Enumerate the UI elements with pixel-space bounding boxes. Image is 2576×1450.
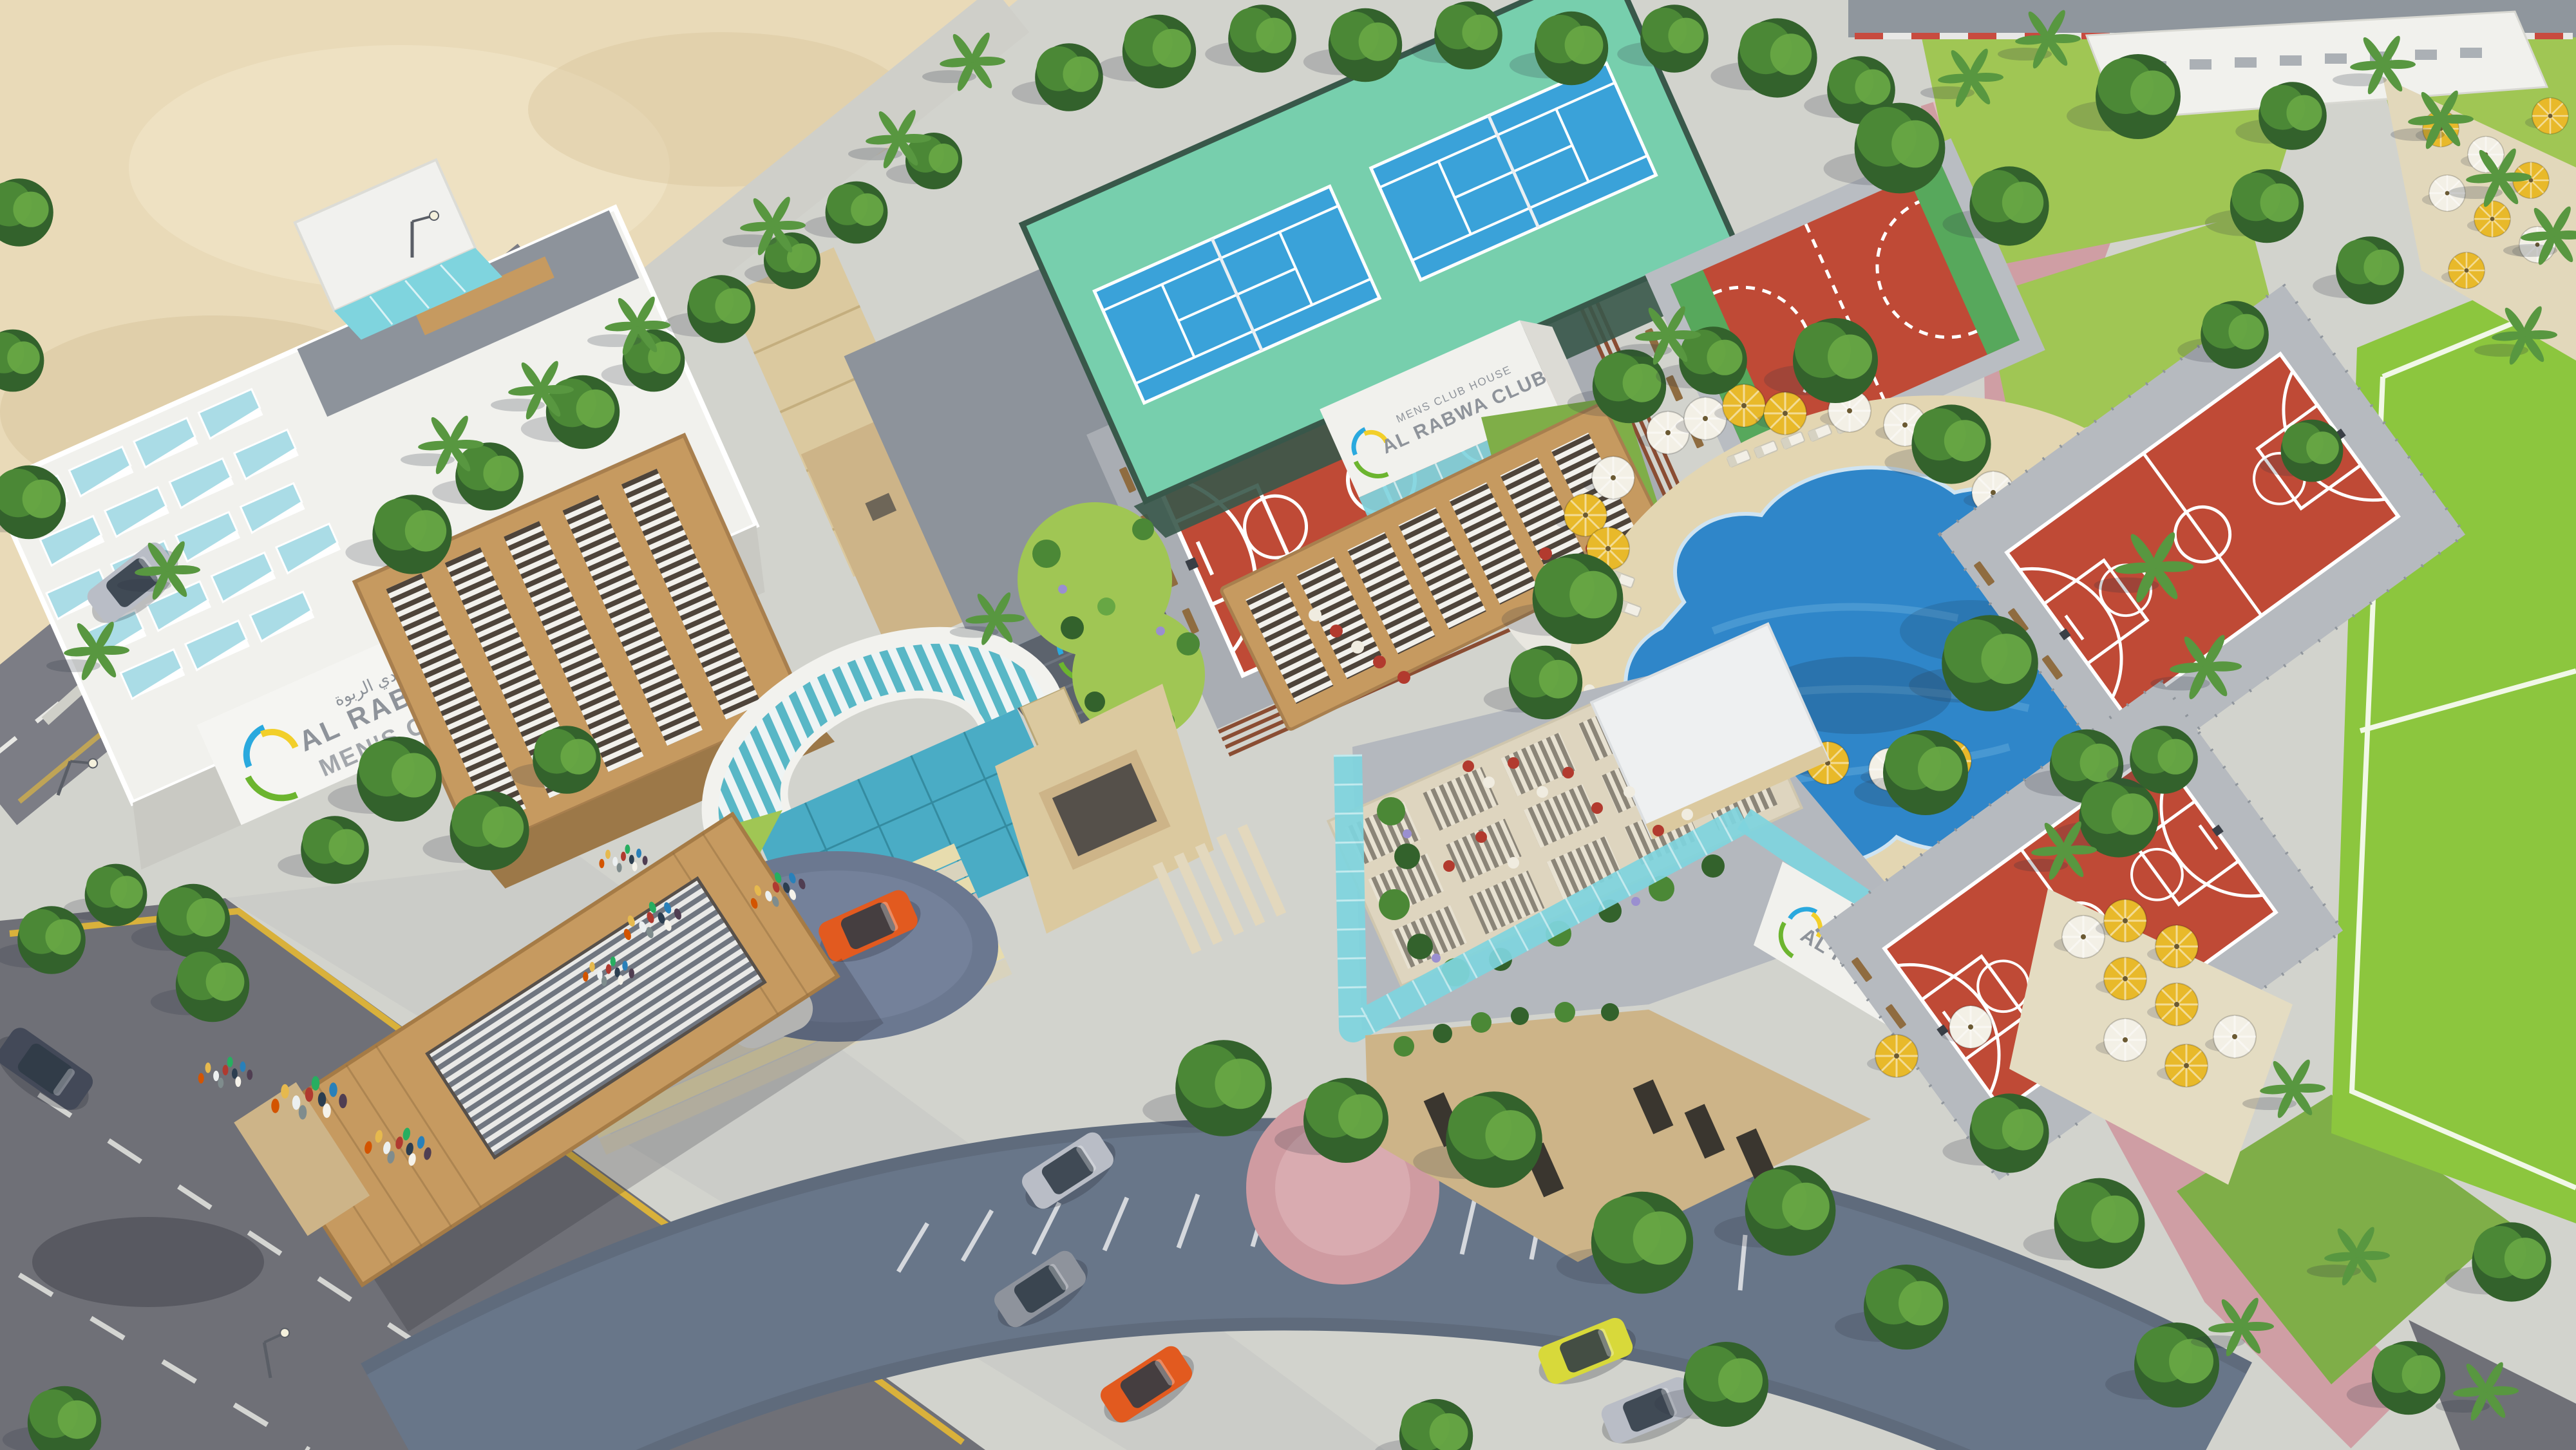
aerial-render-canvas: نادي الربوة AL RABWA MEN'S CLUB R AL RAB…: [0, 0, 2576, 1450]
palm-shadow-on-road: [32, 1217, 264, 1307]
scene-svg: نادي الربوة AL RABWA MEN'S CLUB R AL RAB…: [0, 0, 2576, 1450]
